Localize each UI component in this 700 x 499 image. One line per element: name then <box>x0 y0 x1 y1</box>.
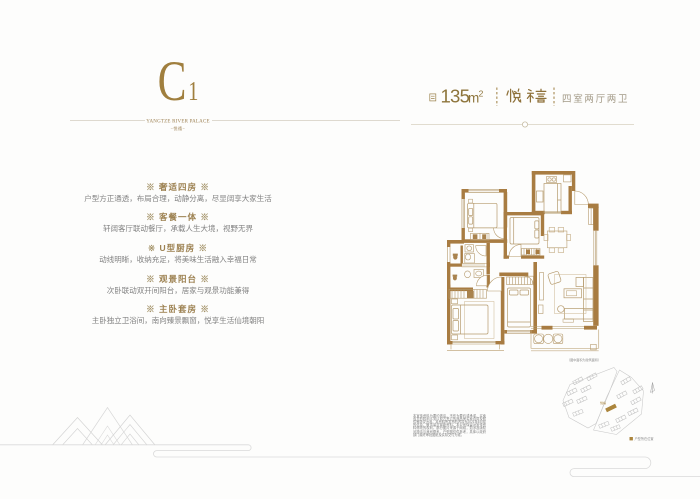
svg-text:四室两厅两卫: 四室两厅两卫 <box>562 93 629 105</box>
svg-text:135: 135 <box>441 86 470 107</box>
svg-text:m: m <box>468 91 479 106</box>
svg-text:2: 2 <box>479 89 484 99</box>
svg-text:YANGTZE RIVER PALACE: YANGTZE RIVER PALACE <box>146 119 210 124</box>
svg-text:~悦禧~: ~悦禧~ <box>171 125 186 131</box>
